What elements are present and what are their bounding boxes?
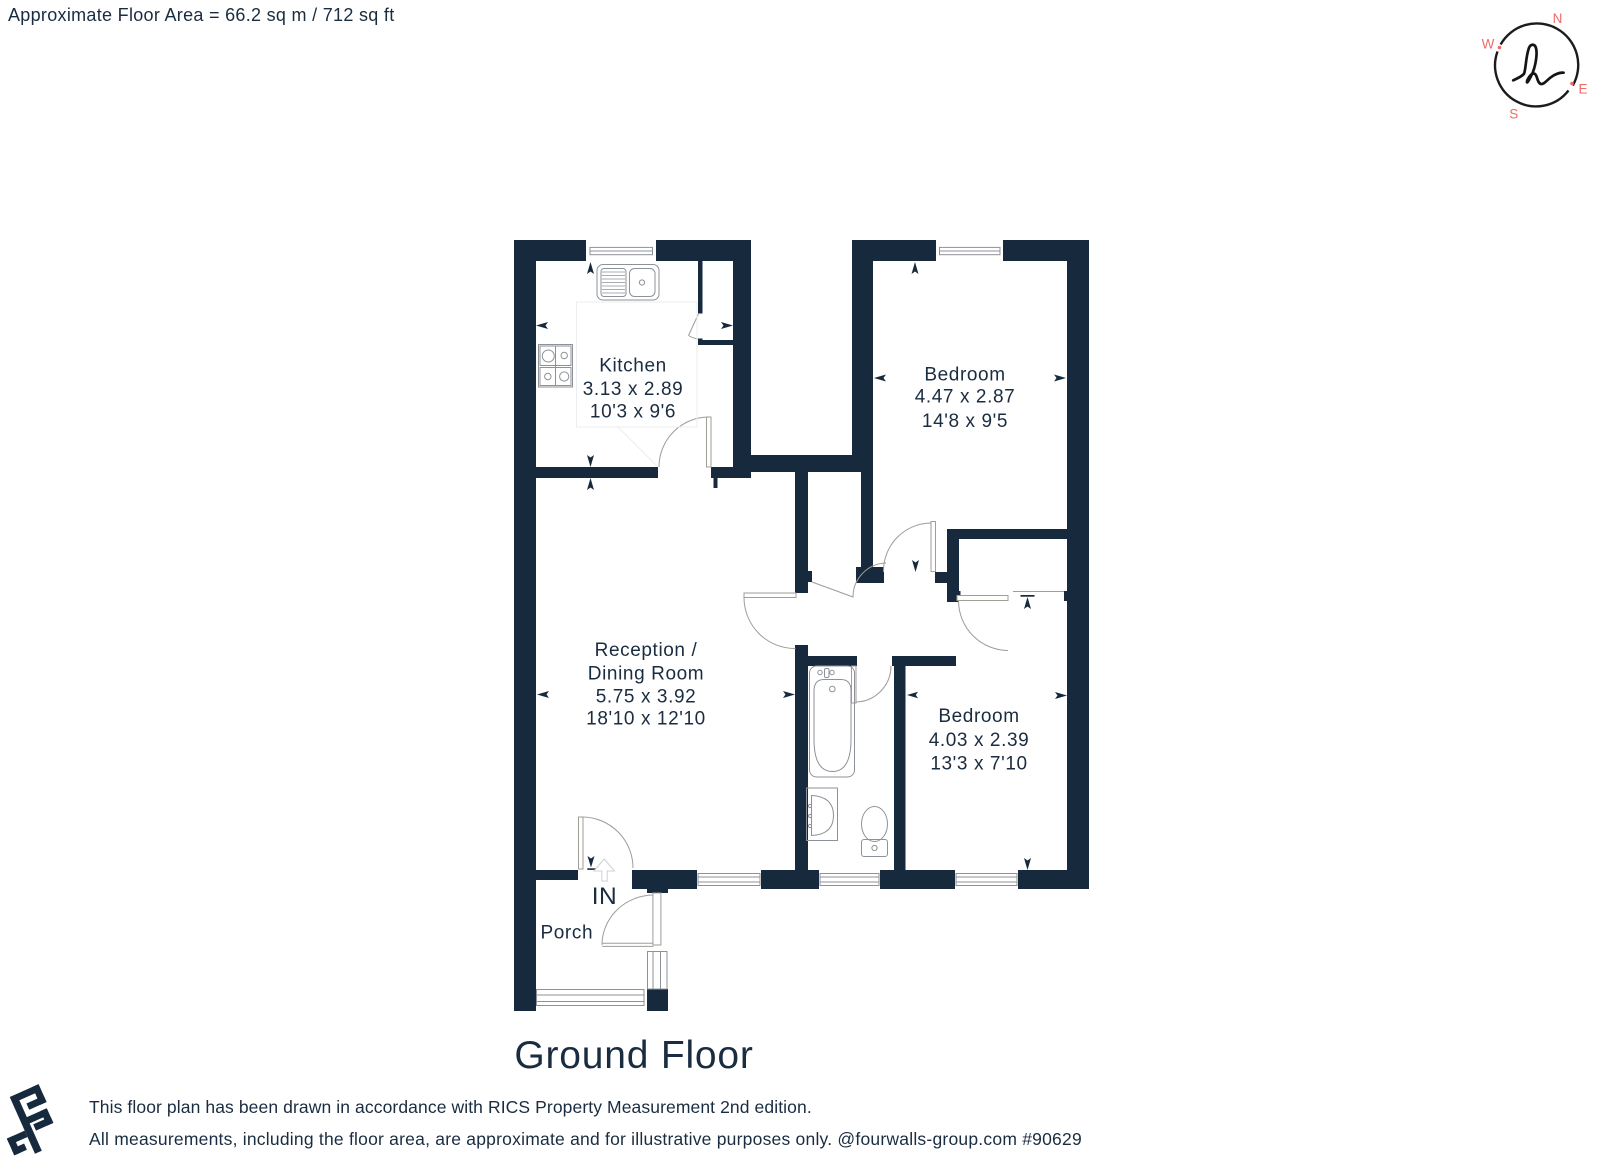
svg-text:3.13 x 2.89: 3.13 x 2.89: [583, 379, 684, 400]
svg-text:10'3 x 9'6: 10'3 x 9'6: [590, 402, 676, 423]
svg-text:Porch: Porch: [540, 923, 593, 944]
svg-text:Bedroom: Bedroom: [938, 706, 1019, 727]
svg-text:Dining Room: Dining Room: [588, 664, 704, 685]
svg-text:4.03 x 2.39: 4.03 x 2.39: [929, 730, 1030, 751]
svg-text:IN: IN: [592, 883, 618, 910]
svg-text:Approximate Floor Area = 66.2: Approximate Floor Area = 66.2 sq m / 712…: [8, 5, 394, 25]
svg-text:14'8 x 9'5: 14'8 x 9'5: [922, 411, 1008, 432]
svg-text:E: E: [1579, 82, 1588, 97]
svg-text:S: S: [1509, 107, 1518, 122]
svg-text:18'10 x 12'10: 18'10 x 12'10: [586, 709, 706, 730]
svg-text:4.47 x 2.87: 4.47 x 2.87: [915, 387, 1016, 408]
svg-text:13'3 x 7'10: 13'3 x 7'10: [930, 754, 1027, 775]
svg-text:All measurements, including th: All measurements, including the floor ar…: [89, 1129, 1082, 1149]
svg-text:W: W: [1482, 37, 1495, 52]
svg-text:Ground Floor: Ground Floor: [514, 1034, 753, 1077]
svg-text:This floor plan has been drawn: This floor plan has been drawn in accord…: [89, 1097, 812, 1117]
svg-text:5.75 x 3.92: 5.75 x 3.92: [596, 687, 697, 708]
svg-text:N: N: [1553, 11, 1563, 26]
svg-text:Kitchen: Kitchen: [599, 356, 667, 377]
svg-text:Reception /: Reception /: [595, 640, 698, 661]
svg-text:Bedroom: Bedroom: [924, 365, 1005, 386]
